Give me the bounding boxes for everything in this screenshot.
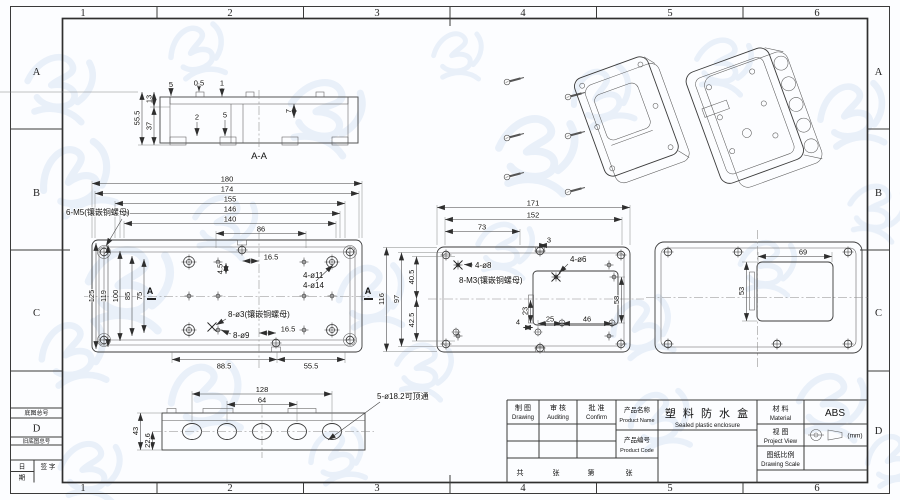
note-8d3: 8-ø3(镶嵌铜螺母) (228, 309, 290, 319)
note-4d11: 4-ø11 (303, 271, 324, 280)
base-drawing-no-label: 底图总号 (24, 409, 48, 417)
grid-col-3: 3 (374, 8, 379, 19)
sheets-no-unit: 张 (626, 468, 633, 477)
dim-section-7: 7 (284, 109, 293, 113)
product-code-label-en: Product Code (620, 448, 654, 454)
grid-col-4b: 4 (520, 483, 526, 494)
section-marker-a-right: A (365, 286, 372, 296)
dim-mid-58: 58 (612, 296, 621, 304)
confirm-label-en: Confirm (586, 415, 607, 421)
dim-front-119: 119 (99, 290, 108, 302)
dim-section-1: 1 (220, 79, 224, 88)
dim-mid-97: 97 (392, 295, 401, 303)
note-4d8: 4-ø8 (475, 261, 492, 270)
dim-front-55-5: 55.5 (304, 362, 319, 371)
view-label-zh: 视 图 (773, 427, 789, 436)
grid-col-6b: 6 (814, 483, 819, 494)
dim-front-85: 85 (123, 292, 132, 300)
dim-front-180: 180 (221, 175, 234, 184)
dim-mid-25: 25 (546, 315, 554, 324)
dim-front-155: 155 (224, 195, 237, 204)
note-knockout: 5-ø18.2可顶通 (377, 391, 429, 401)
grid-col-4: 4 (520, 8, 526, 19)
dim-section-2: 2 (195, 113, 199, 122)
dim-front-16-5-top: 16.5 (264, 253, 279, 262)
sheets-no-label: 第 (588, 468, 595, 477)
grid-col-3b: 3 (374, 483, 379, 494)
dim-front-88-5: 88.5 (217, 362, 232, 371)
grid-row-c: C (33, 308, 40, 319)
section-label: A-A (251, 151, 268, 162)
dim-front-174: 174 (221, 185, 234, 194)
dim-front-75: 75 (135, 292, 144, 300)
grid-row-a-r: A (875, 67, 883, 78)
dim-front-125: 125 (87, 290, 96, 303)
dim-side-53: 53 (737, 287, 746, 295)
dim-mid-73: 73 (478, 223, 486, 232)
dim-mid-42-5: 42.5 (407, 313, 416, 328)
grid-col-5: 5 (667, 8, 672, 19)
material-label-en: Material (770, 416, 791, 422)
dim-mid-171: 171 (527, 199, 540, 208)
dim-bot-43: 43 (131, 427, 140, 435)
scale-label-zh: 图纸比例 (767, 450, 795, 459)
drawing-label-en: Drawing (512, 415, 534, 421)
dim-section-37: 37 (145, 122, 154, 130)
section-marker-a-left: A (147, 286, 154, 296)
dim-front-146: 146 (224, 205, 237, 214)
dim-side-69: 69 (799, 248, 807, 257)
auditing-label-zh: 审 核 (550, 403, 566, 412)
dim-mid-46: 46 (583, 315, 591, 324)
material-value: ABS (825, 408, 845, 419)
dim-mid-3: 3 (547, 236, 551, 245)
dim-mid-4: 4 (516, 318, 520, 327)
dim-bot-128: 128 (256, 385, 269, 394)
dim-bot-64: 64 (258, 396, 266, 405)
dim-front-140: 140 (224, 215, 237, 224)
grid-col-2b: 2 (227, 483, 232, 494)
dim-section-5: 5 (169, 80, 173, 89)
note-4d6: 4-ø6 (570, 255, 587, 264)
grid-row-c-r: C (875, 308, 882, 319)
dim-section-5b: 5 (223, 111, 227, 120)
grid-col-1b: 1 (80, 483, 85, 494)
grid-row-d-r: D (875, 426, 883, 437)
product-name-en: Sealed plastic enclosure (675, 423, 741, 429)
grid-row-b: B (33, 188, 40, 199)
sheets-total-unit: 张 (553, 468, 560, 477)
material-label-zh: 材 料 (773, 404, 789, 413)
note-8m3: 8-M3(镶嵌铜螺母) (459, 275, 523, 285)
dim-section-13: 13 (145, 95, 154, 103)
grid-col-1: 1 (80, 8, 85, 19)
product-code-label-zh: 产品编号 (624, 435, 651, 444)
dim-front-86: 86 (257, 225, 265, 234)
drawing-label-zh: 制 图 (515, 403, 531, 412)
sheets-total-label: 共 (517, 468, 524, 477)
dim-front-4-5: 4.5 (216, 264, 225, 274)
auditing-label-en: Auditing (547, 415, 569, 421)
grid-row-b-r: B (875, 188, 882, 199)
dim-mid-116: 116 (377, 293, 386, 305)
product-name-zh: 塑 料 防 水 盒 (665, 406, 750, 420)
dim-mid-152: 152 (527, 211, 540, 220)
dim-section-0-5: 0.5 (194, 79, 204, 88)
grid-col-6: 6 (814, 8, 819, 19)
dim-section-55-5: 55.5 (133, 111, 142, 126)
drawing-page: 1 2 3 4 5 6 1 2 3 4 5 6 A B C A B C D 底图… (0, 0, 900, 500)
drawing-sheet: 1 2 3 4 5 6 1 2 3 4 5 6 A B C A B C D 底图… (0, 0, 900, 500)
confirm-label-zh: 批 准 (589, 403, 605, 412)
signature-label: 签 字 (41, 462, 56, 471)
grid-row-a: A (33, 67, 41, 78)
grid-col-5b: 5 (667, 483, 672, 494)
unit-label: (mm) (847, 433, 862, 440)
note-8d9: 8-ø9 (233, 331, 250, 340)
date-label-top: 日 (19, 463, 26, 471)
product-name-label-en: Product Name (619, 418, 654, 424)
grid-col-2: 2 (227, 8, 232, 19)
dim-bot-22-6: 22.6 (143, 433, 152, 448)
product-name-label-zh: 产品名称 (624, 405, 651, 414)
view-label-en: Project View (764, 439, 798, 445)
date-label-bottom: 期 (19, 474, 26, 482)
dim-mid-23: 23 (521, 307, 530, 315)
dim-front-100: 100 (111, 290, 120, 303)
note-m5: 6-M5(镶嵌铜螺母) (66, 207, 130, 217)
dim-mid-40-5: 40.5 (407, 270, 416, 285)
dim-front-16-5-bottom: 16.5 (281, 325, 296, 334)
scale-label-en: Drawing Scale (761, 462, 800, 468)
grid-row-d: D (33, 424, 41, 435)
old-base-drawing-no-label: 旧底图总号 (23, 437, 51, 445)
note-4d14: 4-ø14 (303, 281, 324, 290)
